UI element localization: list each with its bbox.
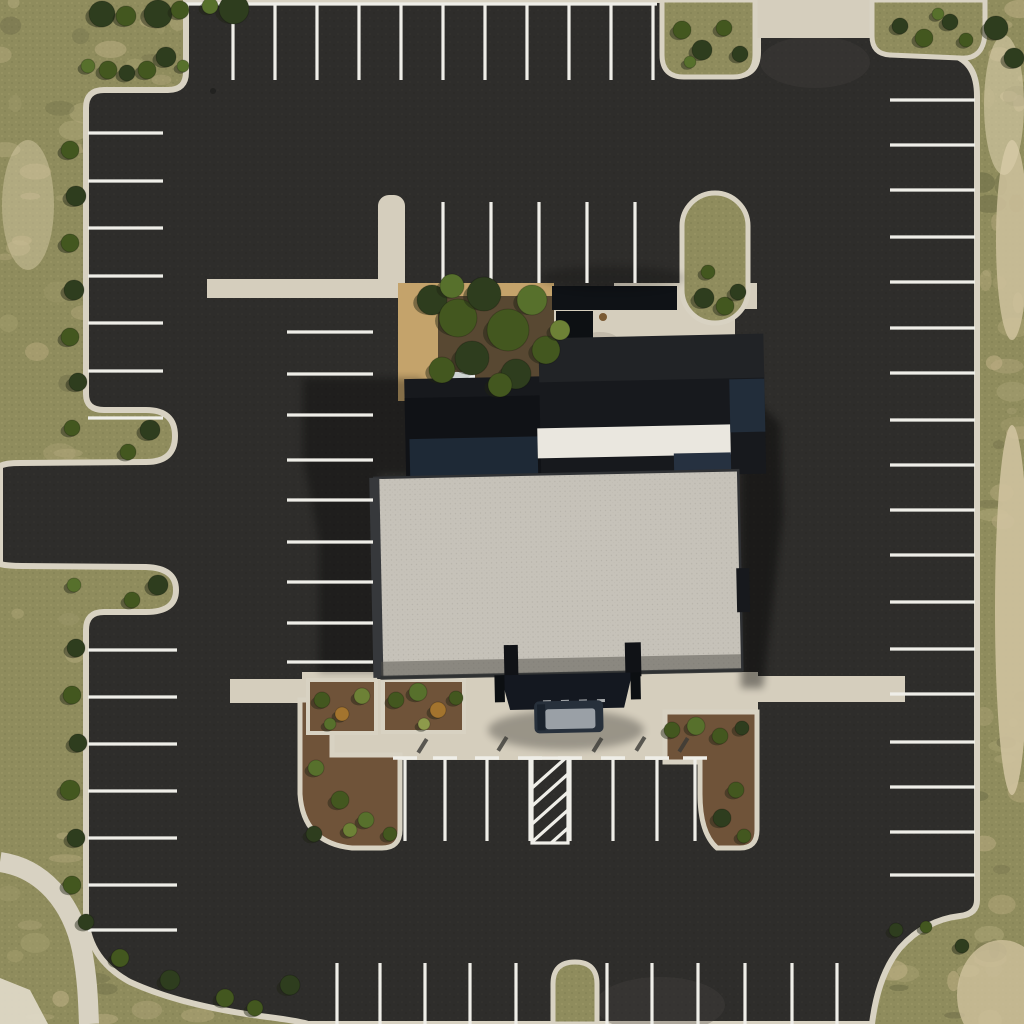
pedestrian-dot [599,313,607,321]
bush [383,827,397,841]
bush [1004,48,1024,68]
bush [247,1000,263,1016]
grass-patch [59,613,80,626]
bush [429,357,455,383]
bush [984,16,1008,40]
grass-patch [0,17,21,35]
bush [60,780,80,800]
asphalt-worn-top-drive [760,36,870,88]
bush [440,274,464,298]
bush [61,141,79,159]
bush [61,328,79,346]
aerial-photo [0,0,1024,1024]
building-roof-right-notch [736,568,750,612]
bush [306,826,322,842]
grass-patch [181,1008,214,1022]
bush [409,683,427,701]
bush [664,722,680,738]
bush [64,280,84,300]
island-bottom-capsule [553,962,597,1024]
building-roof-chimney-right [625,642,642,676]
bush [550,320,570,340]
entrance-canopy-post-right [630,672,641,699]
grass-patch [72,28,89,44]
bush [455,341,489,375]
parked-vehicle-roof [545,708,595,729]
bush [219,0,249,24]
bush [942,14,958,30]
bush [915,29,933,47]
entrance-canopy-post-left [494,675,505,702]
bush [728,782,744,798]
northwest-sidewalk-finger [378,195,405,297]
parked-vehicle-hood [537,704,546,730]
bush [467,277,501,311]
grass-patch [18,920,42,930]
grass-patch [986,355,1003,370]
bush [99,61,117,79]
bush [120,444,136,460]
bush [81,59,95,73]
bush [932,8,944,20]
bush [67,829,85,847]
bush [517,285,547,315]
bush [314,692,330,708]
grass-patch [988,895,1016,915]
bush [67,578,81,592]
bush [488,373,512,397]
building-north-roof-upper-step [538,334,764,383]
building-navy-panel-right [729,379,765,433]
bush [449,691,463,705]
grass-patch [993,865,1010,874]
bush [308,760,324,776]
bush [716,20,732,36]
light-pole-base [210,88,216,94]
bush [335,707,349,721]
bush [673,21,691,39]
bush [111,949,129,967]
bush [712,728,728,744]
bush [148,575,168,595]
grass-patch [52,991,69,1007]
grass-patch [152,75,172,85]
bush [324,718,336,730]
bush [687,717,705,735]
bush [89,1,115,27]
bush [920,921,932,933]
bush [160,970,180,990]
bush [124,592,140,608]
bush [63,876,81,894]
bush [119,65,135,81]
bush [692,40,712,60]
bush [737,829,751,843]
top-entrance-concrete-drive [753,0,874,38]
bush [63,686,81,704]
bush [202,0,218,14]
bush [280,975,300,995]
bush [388,692,404,708]
bush [358,812,374,828]
grass-patch [25,342,49,361]
bush [892,18,908,34]
bush [138,61,156,79]
grass-patch [1007,408,1017,415]
bush [959,33,973,47]
grass-patch [11,609,24,619]
bush [713,809,731,827]
bush [889,923,903,937]
scene-root [0,0,1024,1024]
bush [955,939,969,953]
grass-patch [983,270,992,276]
bush [487,309,529,351]
grass-patch [889,985,908,991]
bush [67,639,85,657]
bush [69,734,87,752]
bush [61,234,79,252]
grass-patch [21,933,50,953]
bush [216,989,234,1007]
bush [735,721,749,735]
bush [64,420,80,436]
bush [684,56,696,68]
north-canopy-shadow [540,266,684,290]
grass-patch [94,983,118,994]
grass-patch [95,41,127,58]
bush [171,1,189,19]
grass-patch [49,854,82,862]
bush [730,284,746,300]
bush [69,373,87,391]
sand-patch-left-top [2,140,54,270]
building-roof-chimney-left [504,645,519,679]
bush [343,823,357,837]
bush [66,186,86,206]
northwest-sidewalk [207,279,405,298]
bush [156,47,176,67]
bush [354,688,370,704]
grass-patch [993,440,1005,449]
grass-patch [45,101,74,116]
bush [116,6,136,26]
aerial-photo-canvas [0,0,1024,1024]
bush [331,791,349,809]
bush [418,718,430,730]
bush [140,420,160,440]
bush [694,288,714,308]
bush [732,46,748,62]
grass-patch [9,95,22,112]
building-main-gray-roof [374,470,742,678]
bush [78,914,94,930]
bush [701,265,715,279]
bush [177,60,189,72]
bush [430,702,446,718]
grass-patch [132,1001,162,1020]
grass-patch [7,950,23,962]
